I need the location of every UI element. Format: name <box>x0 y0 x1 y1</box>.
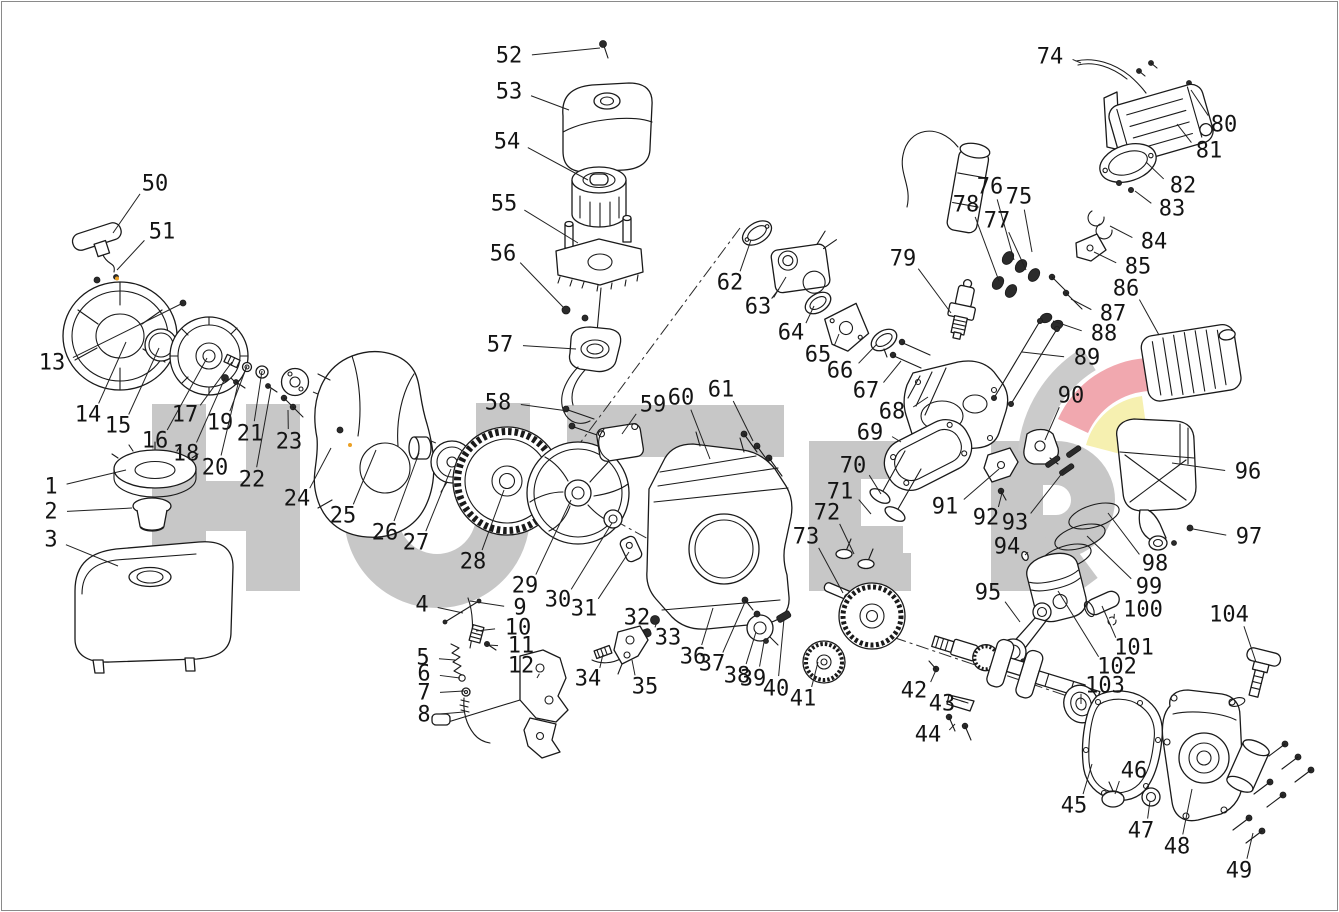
part-number-label: 54 <box>494 130 521 155</box>
part-number-label: 34 <box>575 667 602 692</box>
highlight-dot <box>348 443 352 447</box>
part-number-label: 82 <box>1170 174 1197 199</box>
part-number-label: 56 <box>490 242 517 267</box>
leader-line <box>440 691 464 692</box>
part-number-label: 55 <box>491 192 518 217</box>
part-number-label: 25 <box>330 504 357 529</box>
part-number-label: 83 <box>1159 197 1186 222</box>
part-number-label: 48 <box>1164 835 1191 860</box>
starter-cup <box>409 437 431 459</box>
part-number-label: 50 <box>142 172 169 197</box>
part-number-label: 13 <box>39 351 66 376</box>
part-labels-layer: 1234567891011121314151617181920212223242… <box>39 44 1263 884</box>
intake-manifold <box>562 327 621 423</box>
part-number-label: 18 <box>173 442 200 467</box>
part-number-label: 3 <box>44 528 57 553</box>
manifold-studs <box>563 406 600 436</box>
part-number-label: 47 <box>1128 819 1155 844</box>
part-number-label: 29 <box>512 574 539 599</box>
part-number-label: 42 <box>901 679 928 704</box>
carb-gasket <box>738 216 776 250</box>
part-number-label: 91 <box>932 495 959 520</box>
leader-line <box>1110 226 1132 238</box>
part-number-label: 66 <box>827 359 854 384</box>
carburetor <box>764 230 844 299</box>
part-number-label: 28 <box>460 550 487 575</box>
highlight-dot <box>115 277 119 281</box>
starter-handle <box>70 221 126 281</box>
part-number-label: 103 <box>1085 674 1125 699</box>
part-number-label: 80 <box>1211 113 1238 138</box>
part-number-label: 77 <box>984 209 1011 234</box>
leader-line <box>1135 191 1151 203</box>
air-filter-base <box>556 216 643 333</box>
fuel-tank <box>75 542 233 673</box>
mount-bolts <box>281 395 303 417</box>
intake-gasket <box>867 325 900 357</box>
camshaft <box>823 582 905 649</box>
rod-guide-plate <box>984 448 1018 482</box>
part-number-label: 51 <box>149 220 176 245</box>
part-number-label: 63 <box>745 295 772 320</box>
part-number-label: 88 <box>1091 322 1118 347</box>
part-number-label: 97 <box>1236 525 1263 550</box>
part-number-label: 16 <box>142 429 169 454</box>
leader-line <box>523 346 576 349</box>
valve-cover <box>1140 323 1244 403</box>
part-number-label: 69 <box>857 421 884 446</box>
leader-line <box>440 712 464 714</box>
leader-line <box>532 48 600 55</box>
part-number-label: 30 <box>545 588 572 613</box>
part-number-label: 33 <box>655 626 682 651</box>
crank-bolt <box>929 661 939 672</box>
wing-screw <box>600 41 609 59</box>
leader-line <box>598 552 629 599</box>
part-number-label: 104 <box>1209 603 1249 628</box>
leader-line <box>859 344 877 363</box>
leader-line <box>113 194 140 233</box>
part-number-label: 57 <box>487 333 514 358</box>
part-number-label: 8 <box>417 703 430 728</box>
part-number-label: 24 <box>284 487 311 512</box>
part-number-label: 84 <box>1141 230 1168 255</box>
leader-line <box>931 670 936 682</box>
part-number-label: 99 <box>1136 575 1163 600</box>
leader-line <box>254 371 262 421</box>
air-box <box>1117 419 1196 550</box>
part-number-label: 98 <box>1142 552 1169 577</box>
control-bracket <box>432 650 568 758</box>
part-number-label: 86 <box>1113 277 1140 302</box>
leader-line <box>438 607 463 613</box>
part-number-label: 40 <box>763 677 790 702</box>
part-number-label: 100 <box>1123 598 1163 623</box>
cylinder-block <box>647 432 792 629</box>
part-number-label: 72 <box>814 501 841 526</box>
part-number-label: 21 <box>237 422 264 447</box>
part-number-label: 59 <box>640 393 667 418</box>
leader-line <box>1102 606 1116 638</box>
leader-line <box>521 404 568 411</box>
leader-line <box>964 469 999 500</box>
exploded-parts-diagram: 1234567891011121314151617181920212223242… <box>0 0 1339 912</box>
boot-bushings <box>990 249 1042 299</box>
air-filter-cover <box>563 83 652 172</box>
leader-line <box>918 269 951 313</box>
part-number-label: 76 <box>977 175 1004 200</box>
part-number-label: 75 <box>1006 185 1033 210</box>
leader-line <box>439 659 455 660</box>
part-number-label: 92 <box>973 506 1000 531</box>
part-number-label: 31 <box>571 597 598 622</box>
part-number-label: 46 <box>1121 759 1148 784</box>
dipstick <box>1237 647 1281 701</box>
part-number-label: 94 <box>994 535 1021 560</box>
part-number-label: 17 <box>172 403 199 428</box>
part-number-label: 22 <box>239 468 266 493</box>
part-number-label: 74 <box>1037 45 1064 70</box>
part-number-label: 26 <box>372 521 399 546</box>
case-bolts <box>946 714 971 740</box>
part-number-label: 58 <box>485 391 512 416</box>
leader-line <box>488 645 498 646</box>
part-number-label: 15 <box>105 414 132 439</box>
leader-line <box>1139 300 1159 335</box>
part-number-label: 73 <box>793 525 820 550</box>
part-number-label: 52 <box>496 44 523 69</box>
part-number-label: 35 <box>632 675 659 700</box>
part-number-label: 53 <box>496 80 523 105</box>
part-number-label: 96 <box>1235 460 1262 485</box>
starter-pawl <box>619 535 644 564</box>
leader-line <box>779 619 784 676</box>
part-number-label: 93 <box>1002 511 1029 536</box>
leader-line <box>67 508 132 511</box>
part-number-label: 12 <box>508 654 535 679</box>
oil-seal <box>1142 788 1160 806</box>
pin-clip <box>1108 617 1116 625</box>
fuel-cap-insert <box>133 498 171 531</box>
leader-line <box>1094 252 1116 263</box>
part-number-label: 1 <box>44 475 57 500</box>
part-number-label: 67 <box>853 379 880 404</box>
bracket-bolts <box>1049 274 1082 309</box>
ignition-coil <box>596 423 645 462</box>
leader-line <box>632 660 635 675</box>
leader-line <box>760 642 764 667</box>
part-number-label: 2 <box>44 500 57 525</box>
wrist-pin <box>1082 589 1121 618</box>
leader-line <box>859 500 871 514</box>
leader-line <box>1031 467 1067 513</box>
leader-line <box>883 361 901 383</box>
part-number-label: 37 <box>699 652 726 677</box>
leader-line <box>117 240 144 270</box>
pipe-clamps <box>1088 211 1112 239</box>
part-number-label: 61 <box>708 378 735 403</box>
case-gasket <box>1083 691 1163 800</box>
part-number-label: 43 <box>929 692 956 717</box>
flywheel-nut <box>604 510 622 528</box>
airbox-screws <box>1172 525 1194 546</box>
part-number-label: 60 <box>668 386 695 411</box>
part-number-label: 70 <box>840 454 867 479</box>
leader-line <box>1108 513 1139 554</box>
governor-gear <box>803 641 845 683</box>
tappets <box>836 539 874 569</box>
leader-line <box>1087 536 1131 579</box>
spark-plug <box>943 277 981 341</box>
part-number-label: 49 <box>1226 859 1253 884</box>
part-number-label: 20 <box>202 456 229 481</box>
parts-diagram-page: HUTER <box>0 0 1339 912</box>
leader-line <box>440 675 460 678</box>
part-number-label: 27 <box>403 531 430 556</box>
manifold-nut <box>582 315 588 321</box>
part-number-label: 4 <box>415 593 428 618</box>
head-studs <box>890 339 930 368</box>
part-number-label: 45 <box>1061 794 1088 819</box>
part-number-label: 23 <box>276 430 303 455</box>
leader-line <box>1024 210 1032 252</box>
part-number-label: 41 <box>790 687 817 712</box>
part-number-label: 14 <box>75 403 102 428</box>
part-number-label: 78 <box>953 193 980 218</box>
part-number-label: 95 <box>975 581 1002 606</box>
throttle-rod <box>1076 60 1146 93</box>
part-number-label: 32 <box>624 606 651 631</box>
part-number-label: 90 <box>1058 384 1085 409</box>
leader-line <box>1005 602 1020 622</box>
crankcase-cover <box>1162 690 1243 821</box>
part-number-label: 64 <box>778 321 805 346</box>
part-number-label: 62 <box>717 271 744 296</box>
leader-line <box>740 240 751 271</box>
block-nut <box>651 616 660 625</box>
part-number-label: 89 <box>1074 346 1101 371</box>
part-number-label: 44 <box>915 723 942 748</box>
leader-line <box>1193 529 1226 535</box>
part-number-label: 79 <box>890 247 917 272</box>
leader-line <box>1247 833 1253 859</box>
part-number-label: 81 <box>1196 139 1223 164</box>
choke-lever <box>614 626 648 674</box>
